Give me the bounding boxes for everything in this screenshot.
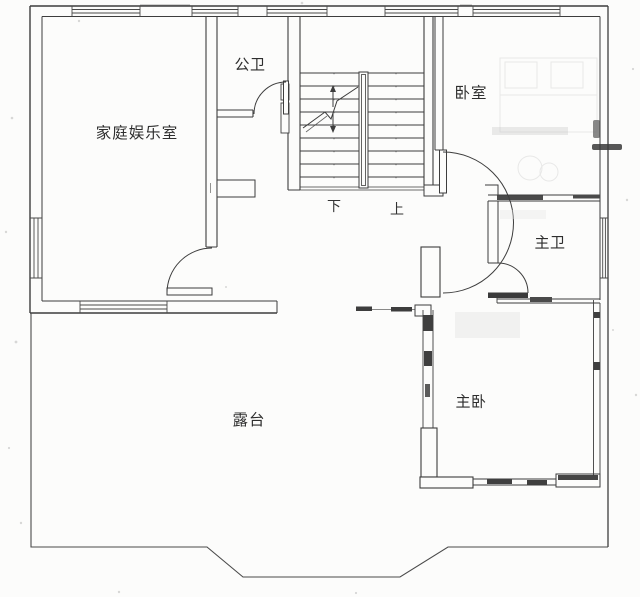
window-top-3 — [267, 6, 327, 17]
room-label-bedroom: 卧室 — [454, 81, 487, 103]
door-public-bath — [254, 81, 289, 114]
stair-rail — [359, 72, 368, 188]
room-label-public-bath: 公卫 — [234, 54, 265, 75]
ghost-smudge — [500, 210, 546, 219]
floor-plan-page: 家庭娱乐室 公卫 卧室 主卫 主卧 露台 下 上 — [0, 0, 640, 597]
staircase — [300, 72, 424, 190]
stair-break-line — [303, 85, 358, 133]
ghost-smudge — [455, 312, 520, 338]
exterior-walls — [30, 6, 608, 548]
room-label-master-bath: 主卫 — [534, 232, 565, 253]
stair-label-down: 下 — [327, 196, 341, 216]
door-master-bath — [488, 263, 528, 298]
window-top-4 — [385, 6, 458, 17]
terrace-outline — [31, 313, 608, 577]
ink-smudge — [592, 144, 622, 150]
room-label-family-room: 家庭娱乐室 — [96, 121, 179, 143]
window-top-5 — [473, 6, 560, 17]
door-family-room — [167, 248, 212, 295]
window-left — [30, 218, 42, 278]
window-bottom-left — [80, 301, 167, 313]
window-top-1 — [72, 6, 140, 17]
ghost-smudge — [492, 127, 568, 135]
window-right — [600, 218, 608, 278]
room-label-terrace: 露台 — [232, 408, 265, 430]
bed-ghost — [500, 58, 597, 181]
room-label-master-bedroom: 主卧 — [455, 391, 486, 412]
window-top-2 — [192, 6, 238, 17]
stair-label-up: 上 — [390, 199, 404, 219]
door-bedroom — [440, 150, 514, 293]
floor-plan-drawing — [0, 0, 640, 597]
